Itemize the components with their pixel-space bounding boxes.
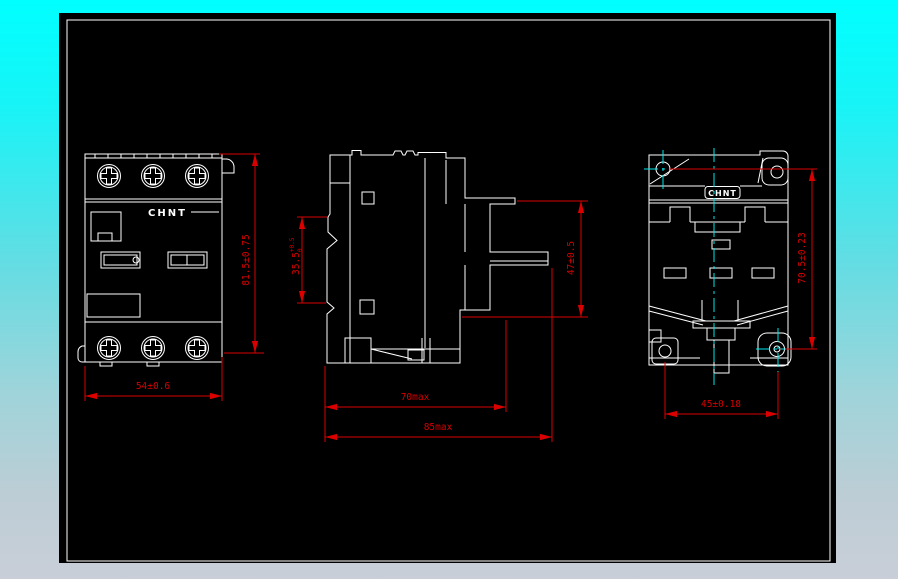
side-dim-depth-total-label: 85max [424, 422, 453, 433]
drawing-sheet [59, 13, 836, 563]
engineering-drawing: CHNT 81.5±0.75 54±0.6 [0, 0, 898, 579]
side-dim-depth-body-label: 70max [401, 392, 430, 403]
side-dim-rail-label: 35.5 [291, 252, 302, 275]
back-brand-logo: CHNT [708, 189, 737, 198]
back-dim-mounting-horizontal-label: 45±0.18 [701, 399, 741, 410]
front-dim-width-label: 54±0.6 [136, 381, 171, 392]
front-dim-height-label: 81.5±0.75 [241, 234, 252, 285]
side-dim-rail-tol-lower: 0 [297, 248, 304, 252]
front-brand-logo: CHNT [148, 208, 187, 219]
side-dim-terminal-label: 47±0.5 [566, 241, 577, 275]
back-dim-mounting-vertical-label: 70.5±0.23 [797, 232, 808, 283]
cad-viewport: CHNT 81.5±0.75 54±0.6 [0, 0, 898, 579]
side-dim-rail-tol-upper: +0.5 [289, 237, 296, 252]
